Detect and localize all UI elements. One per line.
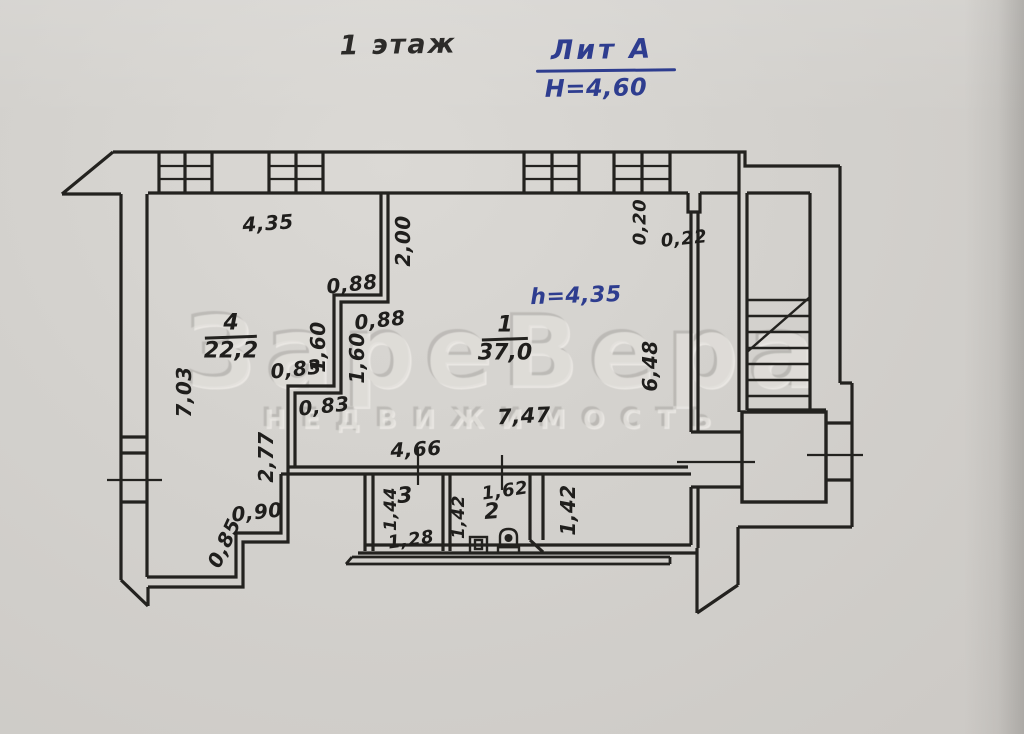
floor-plan-drawing — [0, 0, 1024, 734]
dim-left-lower: 2,77 — [254, 431, 278, 482]
dim-hall-bottom: 4,66 — [390, 436, 443, 463]
dim-room2-depth: 1,42 — [449, 495, 469, 539]
threshold-step — [346, 557, 670, 564]
room-4-label: 4 22,2 — [204, 314, 258, 363]
floor-plan-scan: ЗареВера НЕДВИЖИМОСТЬ — [0, 0, 1024, 734]
left-wall — [121, 194, 148, 606]
dim-left-height: 7,03 — [172, 366, 196, 417]
toilet-icon — [498, 529, 519, 553]
corridor-wall — [281, 467, 691, 474]
dim-mid-lower: 1,60 — [345, 332, 369, 383]
room-1-label: 1 37,0 — [478, 316, 532, 365]
dim-partition-top: 2,00 — [391, 215, 415, 266]
stair-treads — [747, 297, 810, 396]
top-wall — [62, 152, 840, 194]
liter-label: Лит А — [551, 34, 654, 67]
stair-annex — [697, 152, 852, 613]
page-title: 1 этаж — [339, 28, 456, 61]
top-wall-glazing — [159, 166, 670, 179]
room-4-number: 4 — [204, 314, 258, 334]
dim-corridor-right: 1,42 — [556, 484, 580, 535]
dim-right-height: 6,48 — [638, 340, 662, 391]
room-4-area: 22,2 — [204, 340, 258, 362]
dim-hall-width: 7,47 — [496, 403, 551, 430]
dim-top-width: 4,35 — [242, 209, 295, 237]
room-1-area: 37,0 — [478, 342, 532, 364]
room-1-number: 1 — [478, 316, 532, 336]
building-height-label: H=4,60 — [545, 73, 648, 103]
room-1-ceiling-height: h=4,35 — [530, 282, 622, 310]
dim-room3-depth: 1,44 — [381, 487, 401, 531]
dim-notch-height: 0,20 — [630, 199, 651, 245]
